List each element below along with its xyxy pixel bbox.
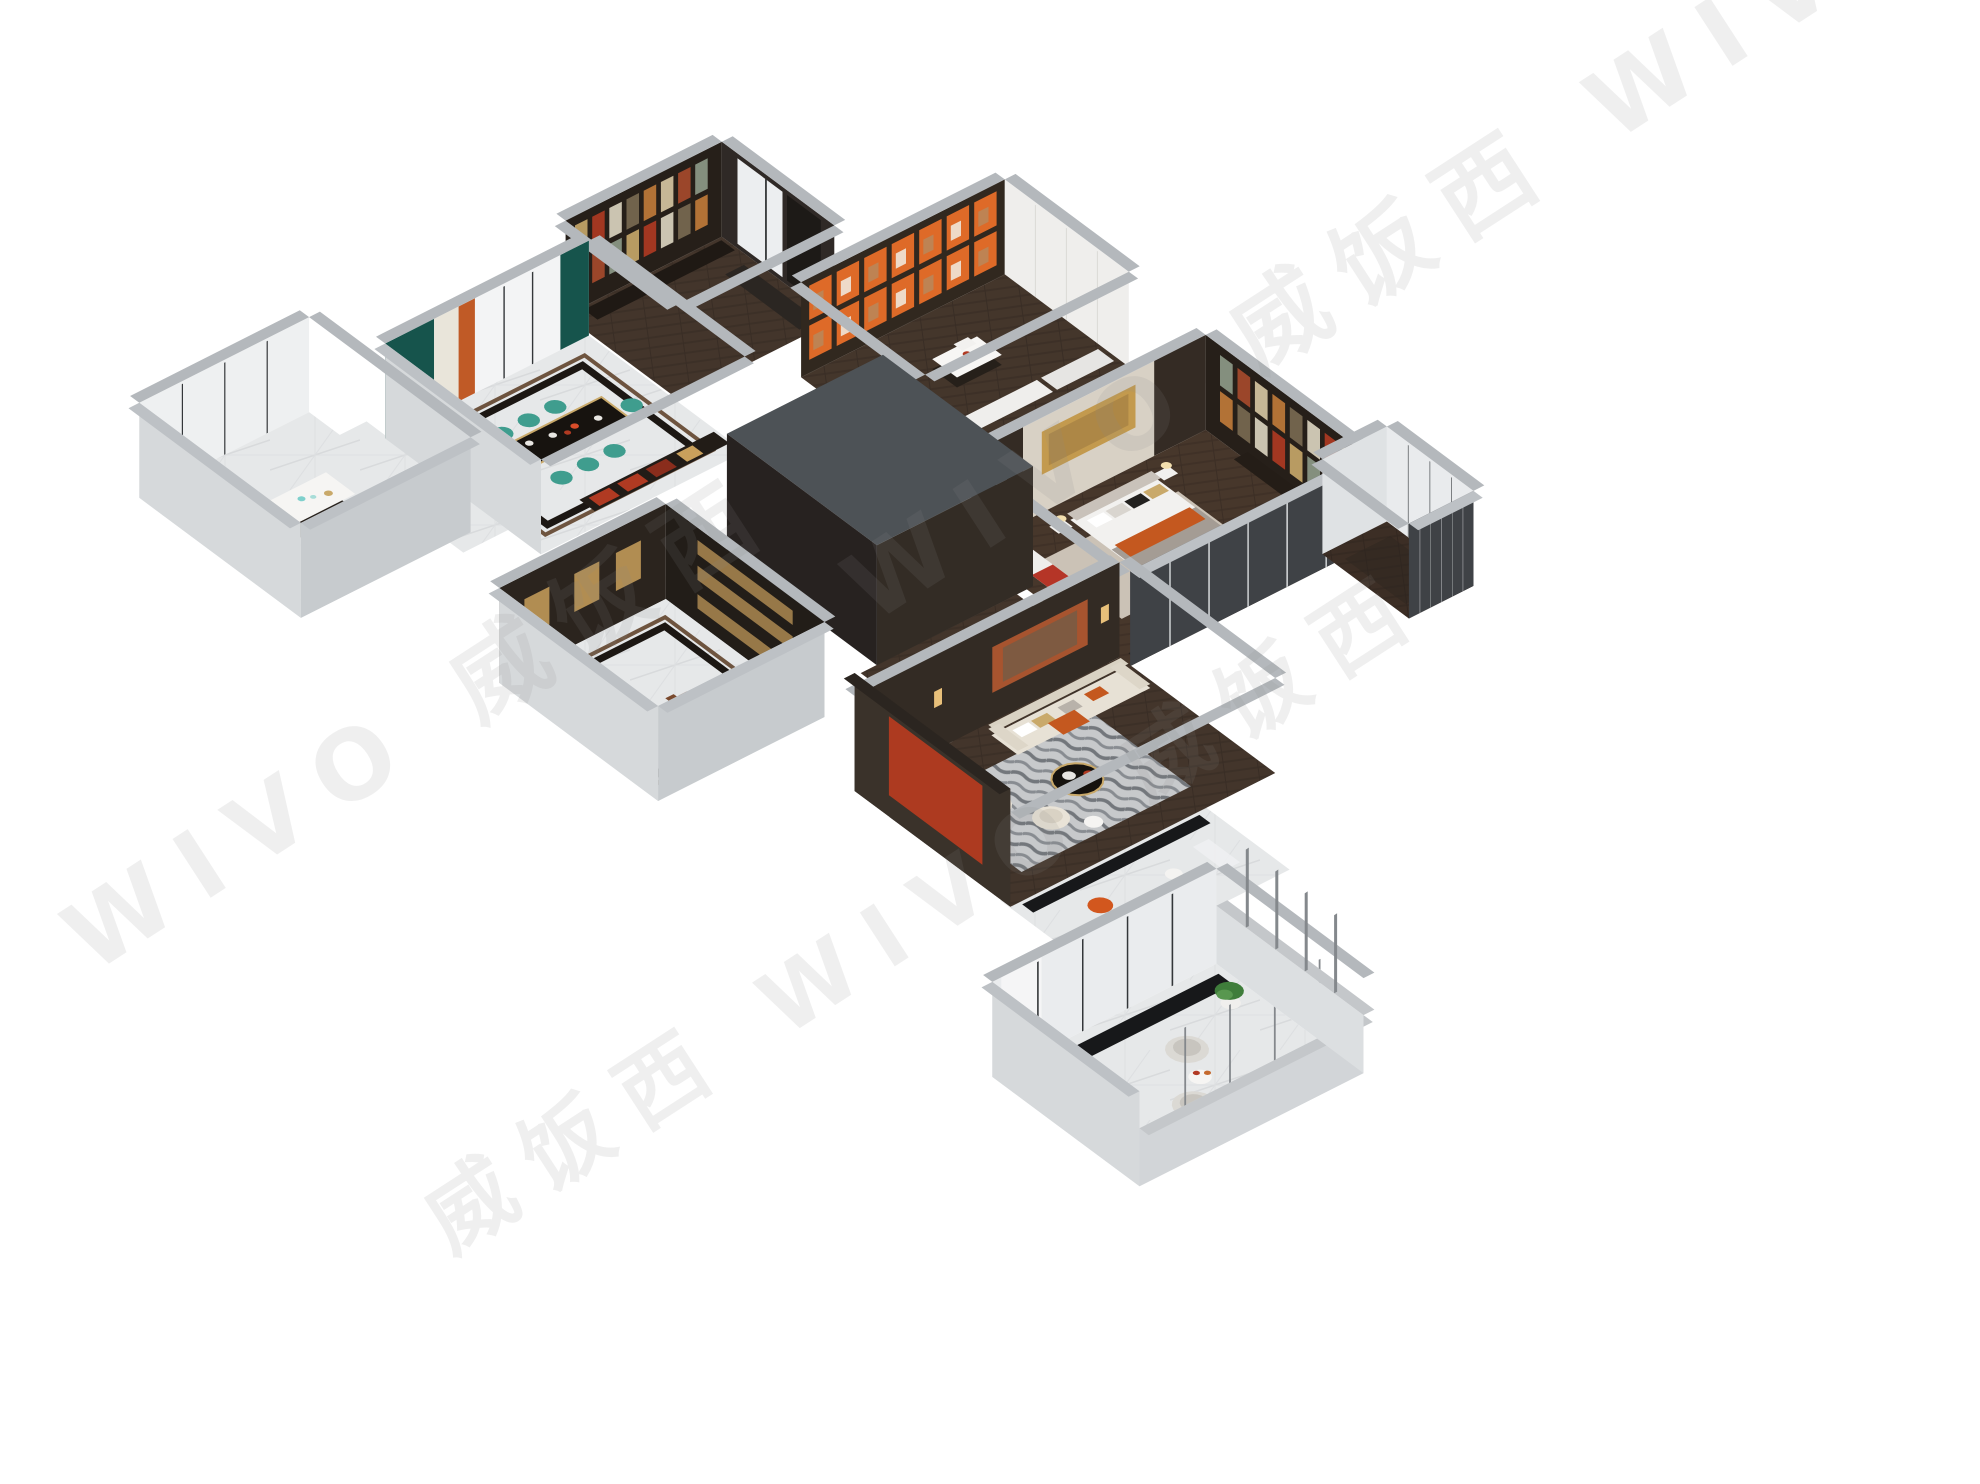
study-north-wall-book: [661, 176, 674, 213]
study-east-wall-detail-2: [765, 179, 767, 266]
balcony-north-wall-mullion: [1082, 939, 1084, 1032]
dining-room-north-wall-detail-3: [560, 241, 589, 350]
study-north-wall-book: [644, 221, 657, 258]
study-north-wall-book: [678, 203, 691, 240]
balcony-north-wall-mullion: [1172, 893, 1174, 986]
balcony-glazing-mullion: [1184, 1027, 1186, 1106]
master-bedroom-south-wall-mullion: [1247, 514, 1249, 607]
study-north-wall-book: [627, 193, 640, 230]
balcony-east-glazing-mullion: [1246, 848, 1249, 928]
study-north-wall-book: [695, 158, 708, 195]
scene-root: [129, 135, 1485, 1186]
floorplan-screenshot: WIVO 威饭西 威饭西 WIVO 威饭西 WIVO 威饭西 WIVO: [0, 0, 1980, 1484]
balcony-north-wall-mullion: [1127, 916, 1129, 1009]
study-north-wall-book: [644, 184, 657, 221]
balcony-east-glazing-mullion: [1275, 870, 1278, 950]
dining-room-north-wall-detail-2: [459, 298, 475, 401]
kitchen-bar-north-wall-mullion: [224, 362, 225, 455]
dining-room-north-wall-mullion: [532, 272, 533, 365]
balcony-east-glazing-mullion: [1334, 913, 1337, 993]
master-bedroom-south-wall-mullion: [1286, 494, 1288, 587]
study-north-wall-book: [609, 202, 622, 239]
bay-window-south-wall-mullion: [1463, 499, 1464, 591]
room-bay-window: [1312, 420, 1485, 619]
dining-room-north-wall-mullion: [503, 286, 504, 379]
walk-in-closet-east-wall-mullion: [1035, 205, 1036, 298]
study-north-wall-book: [695, 194, 708, 231]
balcony-east-glazing-mullion: [1305, 891, 1308, 971]
bay-window-south-wall-mullion: [1441, 510, 1442, 602]
kitchen-bar-north-wall-mullion: [267, 341, 268, 434]
bay-window-south-wall-mullion: [1420, 521, 1421, 613]
balcony-glazing-mullion: [1229, 1004, 1231, 1083]
study-north-wall-book: [661, 212, 674, 249]
study-north-wall-book: [678, 167, 691, 204]
apartment-3d-floorplan: [0, 0, 1980, 1484]
master-bedroom-south-wall-mullion: [1208, 534, 1210, 627]
